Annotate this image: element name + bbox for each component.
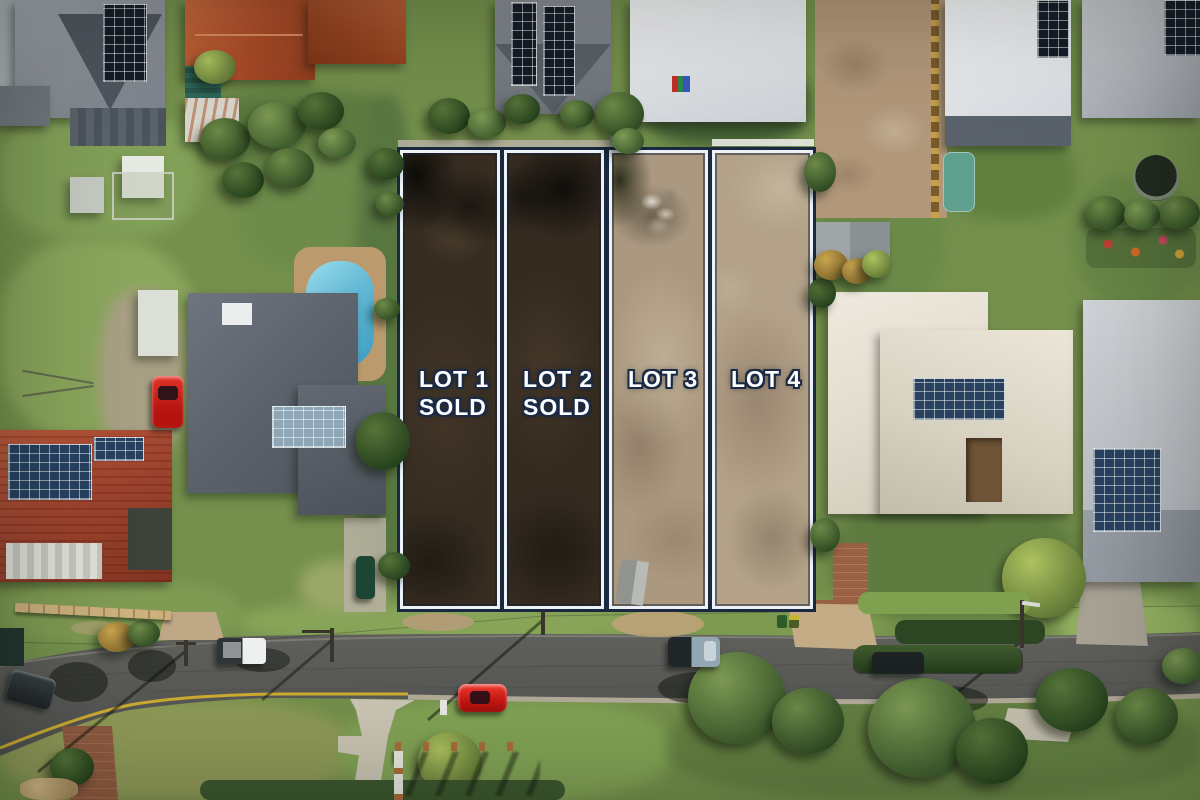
tree xyxy=(222,162,264,198)
lot-2-label: LOT 2 xyxy=(523,365,593,393)
shed-white xyxy=(138,290,178,356)
sandstone-rocks xyxy=(20,778,78,800)
car-window xyxy=(158,386,178,400)
flower-bed xyxy=(1086,228,1196,268)
tree xyxy=(318,128,356,158)
car-window xyxy=(470,691,490,704)
street-light-arm xyxy=(302,630,334,633)
palm-tree xyxy=(194,50,236,84)
tree xyxy=(1036,668,1108,732)
green-wheelie-bin xyxy=(777,615,787,628)
power-pole xyxy=(1020,600,1024,648)
shadowed-car xyxy=(872,652,924,674)
solar-panel-array xyxy=(94,437,144,461)
tree xyxy=(428,98,470,134)
lot-2-label-group: LOT 2 SOLD xyxy=(523,365,593,421)
solar-panel-array xyxy=(272,406,346,448)
lot-1-label: LOT 1 xyxy=(419,365,489,393)
red-car-parked xyxy=(152,376,184,428)
tree xyxy=(356,412,410,470)
tree xyxy=(266,148,314,188)
play-equipment xyxy=(672,76,690,92)
street-light-pole xyxy=(330,628,334,662)
lot-4-label-group: LOT 4 xyxy=(731,365,801,393)
solar-panel-array xyxy=(1037,0,1069,58)
teal-car-driveway xyxy=(356,556,375,599)
ute-roof xyxy=(704,641,716,661)
construction-equipment xyxy=(615,558,661,607)
tree xyxy=(298,92,344,130)
tree xyxy=(374,298,400,320)
aerial-photo: LOT 1 SOLD LOT 2 SOLD LOT 3 LOT 4 xyxy=(0,0,1200,800)
yellow-lid-bin xyxy=(789,615,799,628)
lot-3-boundary: LOT 3 xyxy=(609,150,708,609)
veggie-garden-frame xyxy=(112,172,174,220)
tree xyxy=(772,688,844,754)
tree xyxy=(612,128,644,154)
tree xyxy=(956,718,1028,784)
solar-panel-array xyxy=(1093,448,1161,532)
vacant-dirt-lot xyxy=(815,0,947,218)
retaining-wall xyxy=(398,140,610,147)
lot-4-boundary: LOT 4 xyxy=(712,150,813,609)
tree xyxy=(810,518,840,552)
tree xyxy=(1116,688,1178,744)
power-pole xyxy=(541,611,545,635)
garden-bush xyxy=(1160,196,1200,230)
tree xyxy=(128,620,160,646)
power-pole-arm xyxy=(176,642,196,645)
verge-dirt xyxy=(402,613,474,631)
tree-shadow xyxy=(48,662,108,702)
solar-panel-array xyxy=(1164,0,1200,56)
tree xyxy=(368,148,404,180)
lot-2-status: SOLD xyxy=(523,393,593,421)
white-fence xyxy=(712,139,814,146)
white-awning xyxy=(6,543,102,579)
lot-1-label-group: LOT 1 SOLD xyxy=(419,365,489,421)
solar-panel-array xyxy=(8,444,92,500)
tree xyxy=(804,152,836,192)
tree xyxy=(468,108,506,138)
white-rail-fence xyxy=(395,742,530,751)
grey-ute xyxy=(668,637,720,667)
lot-3-label-group: LOT 3 xyxy=(628,365,698,393)
garden-shed xyxy=(70,177,104,213)
trimmed-hedge xyxy=(858,592,1030,614)
white-rail-fence-leg xyxy=(394,751,403,800)
lot-1-status: SOLD xyxy=(419,393,489,421)
house-grey-hip xyxy=(0,86,50,126)
garage-dark xyxy=(128,508,172,570)
tree xyxy=(376,192,404,216)
courtyard-gap xyxy=(966,438,1002,502)
roof-ridge xyxy=(195,34,303,36)
lot-4-label: LOT 4 xyxy=(731,365,801,393)
truck-tray-items xyxy=(223,642,241,658)
footpath-apron xyxy=(350,699,415,736)
tree xyxy=(504,94,540,124)
garden-bush xyxy=(1086,196,1126,230)
footpath-branch xyxy=(338,736,362,756)
house-white xyxy=(630,0,806,122)
garden-bush xyxy=(1124,200,1160,230)
solar-panel-strip xyxy=(543,6,575,96)
lot-2-boundary: LOT 2 SOLD xyxy=(504,150,604,609)
dark-shed xyxy=(0,628,24,666)
rubble-pile xyxy=(638,183,684,245)
house-grey-right xyxy=(1083,300,1200,582)
plunge-pool xyxy=(943,152,975,212)
trampoline xyxy=(1133,155,1179,201)
tree xyxy=(1162,648,1200,684)
tree xyxy=(200,118,250,160)
solar-panel-array xyxy=(913,378,1005,420)
rail-fence-shadows xyxy=(392,752,540,796)
carport xyxy=(70,108,166,146)
roof-skylight xyxy=(222,303,252,325)
lot-1-boundary: LOT 1 SOLD xyxy=(400,150,500,609)
shaded-eave xyxy=(945,116,1071,146)
house-terracotta-dark xyxy=(308,0,406,64)
white-truck xyxy=(217,638,266,664)
tree xyxy=(560,100,594,128)
fence-line xyxy=(931,0,939,218)
lot-3-label: LOT 3 xyxy=(628,365,698,393)
tree xyxy=(378,552,410,580)
white-sign-post xyxy=(440,700,447,715)
solar-panel-array xyxy=(103,4,147,82)
verge-dirt xyxy=(612,611,704,637)
yellow-bush xyxy=(862,250,892,278)
red-car-street xyxy=(458,684,507,712)
tree xyxy=(808,278,836,308)
solar-panel-strip xyxy=(511,2,537,86)
